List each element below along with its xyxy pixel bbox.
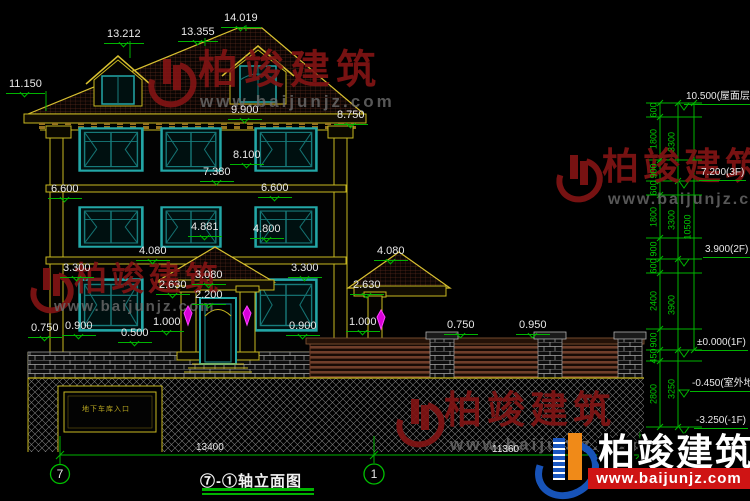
garage-entrance-label: 地下车库入口 — [82, 404, 130, 414]
fence-pillar — [614, 332, 646, 378]
fence-pillar — [426, 332, 458, 378]
baijun-logo: 柏竣建筑 www.baijunjz.com — [530, 426, 750, 501]
axis-bubble-1: 1 — [364, 464, 384, 484]
logo-orange-tower — [568, 433, 582, 480]
logo-brand-text: 柏竣建筑 — [598, 434, 750, 471]
title-underline — [202, 493, 314, 495]
logo-url-banner: www.baijunjz.com — [588, 468, 750, 489]
main-roof — [24, 28, 366, 130]
logo-blue-tower — [553, 438, 565, 480]
fence-pillar — [534, 332, 566, 378]
cad-elevation-drawing: 柏竣建筑 www.baijunjz.com 柏竣建筑 www.baijunjz.… — [0, 0, 750, 501]
title-underline — [202, 488, 314, 491]
axis-bubble-7: 7 — [50, 464, 70, 484]
